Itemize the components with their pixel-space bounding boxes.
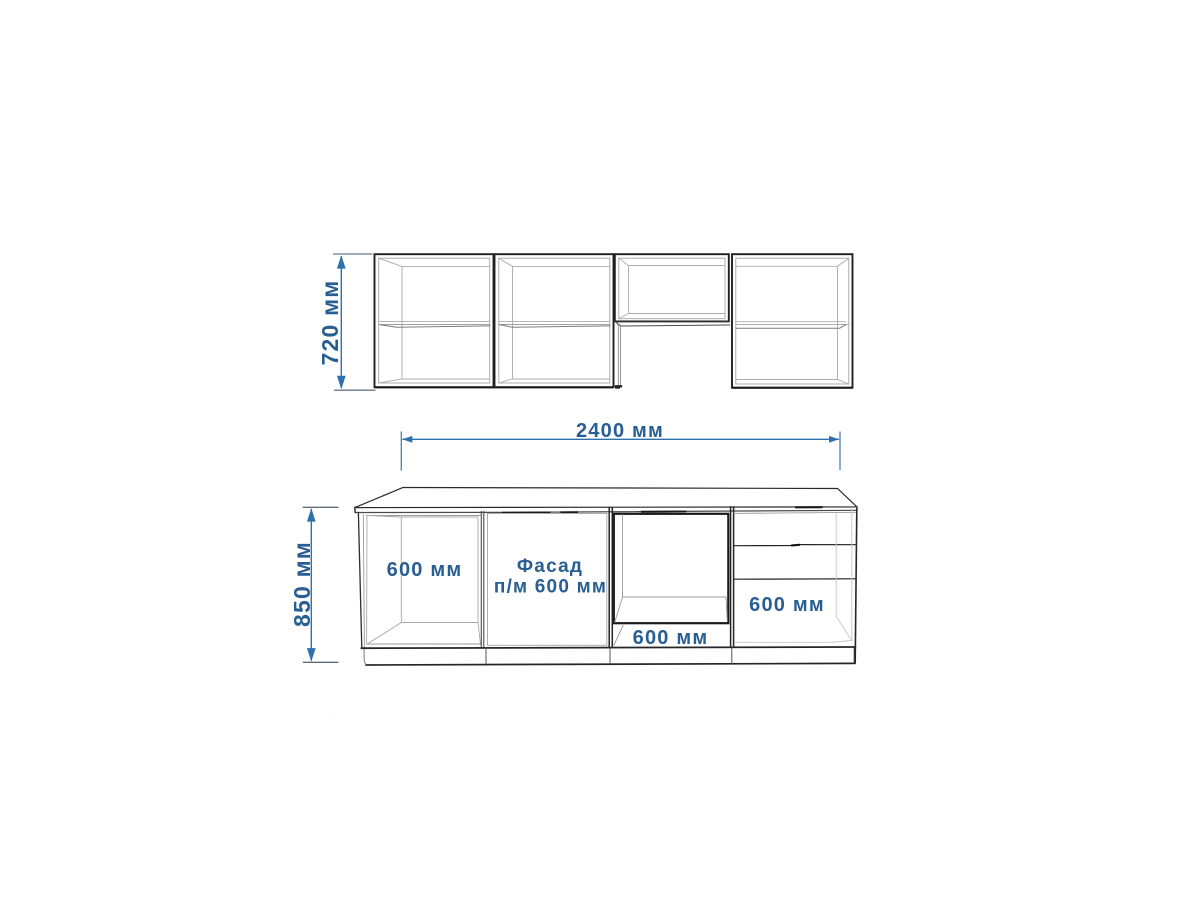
- svg-text:Мебель в дом мебельвдом.рф: Мебель в дом мебельвдом.рф кухни на зака…: [330, 711, 626, 726]
- svg-text:600 мм: 600 мм: [749, 594, 825, 616]
- svg-text:720 мм: 720 мм: [317, 280, 343, 366]
- svg-text:600 мм: 600 мм: [633, 627, 709, 649]
- svg-text:Фасад: Фасад: [517, 556, 583, 577]
- svg-text:600 мм: 600 мм: [387, 559, 463, 581]
- svg-text:850 мм: 850 мм: [289, 541, 315, 627]
- svg-text:п/м 600 мм: п/м 600 мм: [494, 576, 607, 597]
- svg-text:2400 мм: 2400 мм: [576, 420, 664, 442]
